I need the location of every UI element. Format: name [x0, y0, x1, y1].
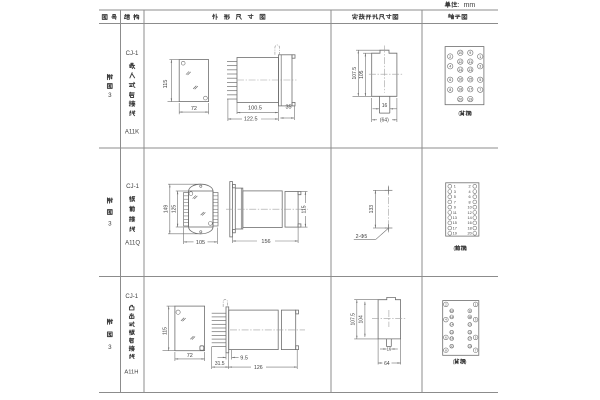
svg-text:5: 5	[454, 195, 456, 199]
svg-text:10: 10	[458, 51, 462, 55]
svg-text:mm: mm	[464, 2, 476, 9]
svg-text:：: ：	[457, 2, 463, 9]
svg-text:8: 8	[449, 88, 451, 92]
svg-text:): )	[470, 111, 472, 117]
svg-text:125: 125	[171, 205, 177, 214]
svg-text:105: 105	[359, 70, 365, 79]
svg-text:3: 3	[479, 65, 481, 69]
svg-text:1: 1	[454, 185, 456, 189]
svg-text:14: 14	[450, 323, 454, 327]
svg-text:CJ-1: CJ-1	[125, 294, 138, 300]
svg-text:18: 18	[467, 226, 471, 230]
svg-text:18: 18	[458, 88, 462, 92]
svg-text:31.5: 31.5	[215, 361, 225, 367]
svg-text:5: 5	[479, 78, 481, 82]
svg-text:107.5: 107.5	[352, 67, 358, 80]
svg-text:126: 126	[254, 365, 263, 371]
svg-text:149: 149	[163, 205, 169, 214]
svg-text:9: 9	[469, 51, 471, 55]
svg-text:(: (	[458, 111, 460, 117]
svg-text:133: 133	[369, 205, 375, 214]
svg-text:4: 4	[449, 65, 451, 69]
svg-text:11: 11	[468, 60, 472, 64]
svg-text:16: 16	[458, 78, 462, 82]
svg-text:122.5: 122.5	[244, 116, 258, 122]
svg-text:): )	[465, 246, 467, 252]
svg-text:20: 20	[450, 344, 454, 348]
svg-text:13: 13	[468, 323, 472, 327]
svg-text:19: 19	[453, 232, 457, 236]
svg-text:3: 3	[454, 190, 456, 194]
svg-text:11: 11	[453, 211, 457, 215]
svg-text:19: 19	[468, 344, 472, 348]
svg-text:3: 3	[108, 221, 112, 228]
svg-text:19: 19	[468, 97, 472, 101]
svg-text:16: 16	[450, 330, 454, 334]
svg-text:115: 115	[301, 205, 307, 213]
svg-text:20: 20	[467, 232, 471, 236]
svg-text:): )	[465, 359, 467, 365]
svg-text:2: 2	[469, 185, 471, 189]
svg-text:9.5: 9.5	[240, 355, 248, 361]
svg-text:14: 14	[458, 68, 462, 72]
svg-text:18: 18	[450, 337, 454, 341]
svg-text:A11Q: A11Q	[125, 241, 140, 247]
svg-text:15: 15	[453, 221, 457, 225]
svg-text:9: 9	[454, 206, 456, 210]
svg-text:17: 17	[453, 226, 457, 230]
svg-text:7: 7	[454, 200, 456, 204]
svg-text:4: 4	[469, 190, 471, 194]
svg-text:16: 16	[467, 221, 471, 225]
svg-text:20: 20	[458, 97, 462, 101]
svg-text:11: 11	[468, 315, 471, 319]
svg-text:17: 17	[468, 337, 472, 341]
svg-text:15: 15	[468, 78, 472, 82]
svg-text:A11K: A11K	[125, 130, 139, 136]
svg-text:100.5: 100.5	[248, 106, 262, 112]
svg-text:(64): (64)	[380, 118, 389, 124]
svg-text:14: 14	[467, 216, 471, 220]
svg-text:12: 12	[450, 315, 454, 319]
svg-text:6: 6	[469, 195, 471, 199]
svg-text:6: 6	[449, 78, 451, 82]
svg-text:CJ-1: CJ-1	[126, 183, 139, 190]
svg-text:35: 35	[285, 104, 291, 110]
svg-text:3: 3	[108, 92, 112, 99]
svg-text:64: 64	[384, 361, 390, 367]
svg-text:15: 15	[468, 330, 472, 334]
svg-text:107.5: 107.5	[350, 313, 356, 326]
svg-text:A11H: A11H	[124, 369, 138, 375]
svg-text:2: 2	[449, 55, 451, 59]
svg-text:115: 115	[162, 327, 168, 335]
svg-text:104: 104	[359, 315, 365, 324]
svg-text:1: 1	[479, 55, 481, 59]
svg-text:7: 7	[479, 88, 481, 92]
svg-text:12: 12	[458, 60, 462, 64]
svg-text:8: 8	[469, 200, 471, 204]
svg-text:13: 13	[468, 68, 472, 72]
svg-text:CJ-1: CJ-1	[126, 50, 139, 57]
svg-text:72: 72	[187, 353, 193, 359]
svg-text:10: 10	[467, 206, 471, 210]
svg-text:17: 17	[468, 88, 472, 92]
svg-text:3: 3	[108, 344, 112, 351]
svg-text:105: 105	[196, 240, 205, 246]
svg-text:72: 72	[191, 106, 197, 112]
svg-text:10: 10	[450, 309, 454, 313]
svg-text:12: 12	[467, 211, 471, 215]
svg-text:156: 156	[261, 239, 270, 245]
svg-text:16: 16	[387, 347, 392, 352]
svg-text:(: (	[453, 359, 455, 365]
svg-text:13: 13	[453, 216, 457, 220]
svg-text:115: 115	[163, 80, 169, 89]
svg-text:16: 16	[382, 103, 388, 109]
